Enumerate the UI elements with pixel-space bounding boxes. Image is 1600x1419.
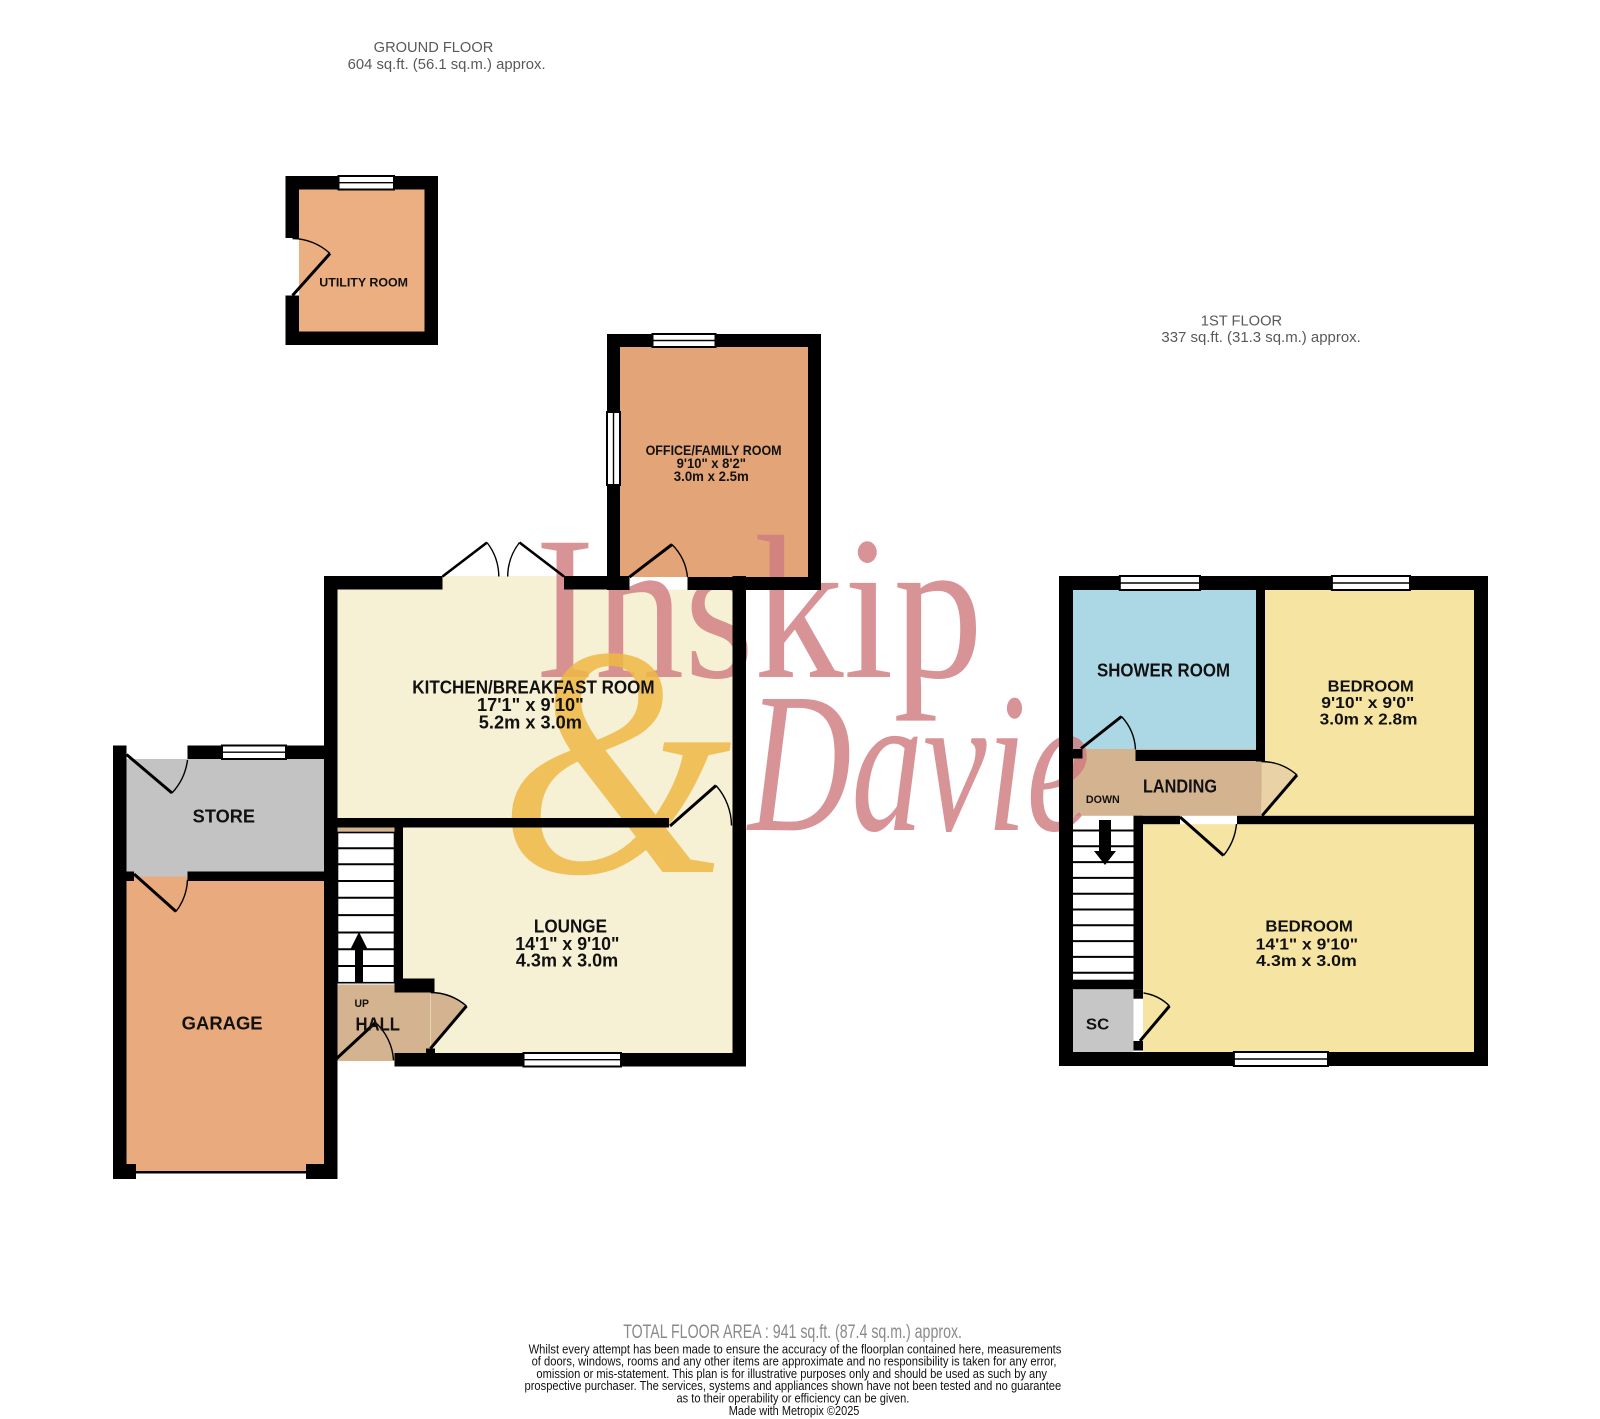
svg-text:GARAGE: GARAGE: [182, 1014, 263, 1034]
svg-text:UP: UP: [355, 998, 370, 1010]
svg-text:BEDROOM: BEDROOM: [1265, 918, 1353, 935]
svg-text:1ST FLOOR: 1ST FLOOR: [1201, 314, 1282, 330]
svg-text:Made with Metropix ©2025: Made with Metropix ©2025: [729, 1403, 860, 1418]
svg-text:3.0m x 2.8m: 3.0m x 2.8m: [1320, 712, 1418, 729]
svg-text:3.0m x 2.5m: 3.0m x 2.5m: [674, 468, 749, 484]
svg-text:TOTAL FLOOR AREA : 941 sq.ft.: TOTAL FLOOR AREA : 941 sq.ft. (87.4 sq.m…: [623, 1322, 962, 1343]
svg-text:DOWN: DOWN: [1086, 794, 1120, 806]
svg-text:604 sq.ft. (56.1 sq.m.) approx: 604 sq.ft. (56.1 sq.m.) approx.: [348, 57, 546, 73]
svg-text:SC: SC: [1086, 1017, 1110, 1034]
svg-text:LANDING: LANDING: [1143, 777, 1217, 797]
svg-text:GROUND FLOOR: GROUND FLOOR: [374, 40, 494, 56]
svg-text:14'1" x 9'10": 14'1" x 9'10": [1256, 936, 1358, 953]
svg-text:4.3m x 3.0m: 4.3m x 3.0m: [516, 951, 618, 971]
svg-text:9'10" x 9'0": 9'10" x 9'0": [1321, 695, 1414, 712]
svg-text:STORE: STORE: [193, 807, 255, 827]
svg-text:4.3m x 3.0m: 4.3m x 3.0m: [1256, 953, 1357, 970]
svg-text:Davie: Davie: [746, 653, 1090, 874]
svg-text:UTILITY ROOM: UTILITY ROOM: [319, 276, 408, 290]
svg-text:HALL: HALL: [356, 1015, 401, 1035]
svg-text:&: &: [499, 580, 733, 944]
svg-text:5.2m x 3.0m: 5.2m x 3.0m: [479, 713, 582, 733]
svg-text:337 sq.ft. (31.3 sq.m.) approx: 337 sq.ft. (31.3 sq.m.) approx.: [1161, 330, 1360, 346]
svg-text:BEDROOM: BEDROOM: [1328, 679, 1414, 696]
svg-text:SHOWER ROOM: SHOWER ROOM: [1097, 661, 1230, 681]
